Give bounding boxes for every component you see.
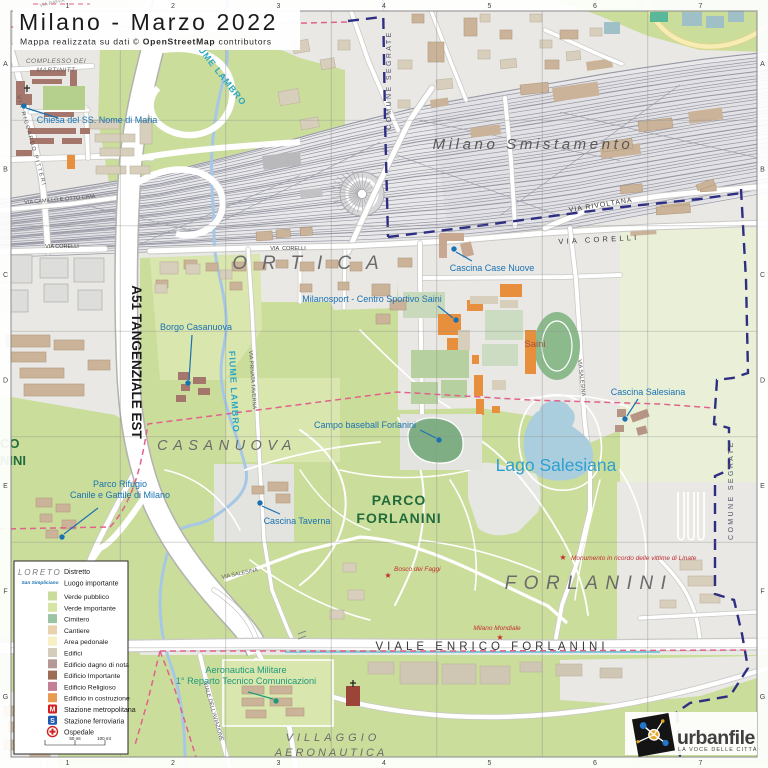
svg-text:Mappa realizzata su dati © Ope: Mappa realizzata su dati © OpenStreetMap…: [20, 37, 272, 47]
svg-text:M: M: [50, 707, 56, 714]
svg-text:Bosco dei Faggi: Bosco dei Faggi: [394, 566, 441, 573]
svg-text:Verde importante: Verde importante: [64, 605, 116, 612]
svg-text:FORLANINI: FORLANINI: [505, 573, 674, 594]
svg-text:Campo baseball Forlanini: Campo baseball Forlanini: [314, 420, 416, 430]
svg-text:E: E: [3, 483, 8, 490]
svg-text:VIALE ENRICO FORLANINI: VIALE ENRICO FORLANINI: [375, 641, 608, 653]
svg-text:Cimitero: Cimitero: [64, 617, 90, 624]
svg-text:ORTICA: ORTICA: [232, 253, 393, 274]
svg-text:urbanfile: urbanfile: [677, 727, 755, 749]
svg-text:5: 5: [488, 3, 492, 10]
svg-text:Milano Mondiale: Milano Mondiale: [473, 625, 521, 632]
svg-text:2: 2: [171, 760, 175, 767]
svg-text:G: G: [3, 694, 8, 701]
svg-text:★: ★: [496, 633, 503, 642]
svg-text:San Simpliciano: San Simpliciano: [21, 580, 58, 586]
svg-text:Cascina Taverna: Cascina Taverna: [264, 516, 331, 526]
svg-text:LA VOCE DELLE CITTÀ: LA VOCE DELLE CITTÀ: [678, 746, 758, 753]
svg-text:Stazione ferroviaria: Stazione ferroviaria: [64, 718, 124, 725]
svg-text:★: ★: [559, 553, 566, 562]
svg-text:4: 4: [382, 3, 386, 10]
svg-text:★: ★: [384, 571, 391, 580]
svg-text:C: C: [760, 272, 765, 279]
svg-text:Borgo Casanuova: Borgo Casanuova: [160, 322, 232, 332]
svg-text:Milano - Marzo 2022: Milano - Marzo 2022: [19, 9, 278, 35]
svg-text:A: A: [760, 61, 765, 68]
svg-text:50 mt: 50 mt: [69, 736, 81, 741]
svg-text:7: 7: [699, 3, 703, 10]
svg-text:Monumento in ricordo delle vit: Monumento in ricordo delle vittime di Li…: [571, 555, 697, 562]
svg-text:PARCO: PARCO: [372, 492, 427, 508]
svg-text:Parco Rifugio: Parco Rifugio: [93, 479, 147, 489]
svg-text:Saini: Saini: [524, 339, 545, 350]
svg-text:6: 6: [593, 3, 597, 10]
svg-text:CASANUOVA: CASANUOVA: [157, 438, 297, 454]
svg-text:VILLAGGIO: VILLAGGIO: [286, 732, 381, 744]
svg-text:Milanosport - Centro Sportivo: Milanosport - Centro Sportivo Saini: [302, 294, 442, 304]
svg-text:5: 5: [488, 760, 492, 767]
svg-text:F: F: [3, 589, 7, 596]
svg-text:COMUNE SEGRATE: COMUNE SEGRATE: [386, 30, 393, 130]
svg-text:B: B: [3, 167, 8, 174]
svg-text:D: D: [3, 378, 8, 385]
svg-text:COMUNE SEGRATE: COMUNE SEGRATE: [728, 440, 735, 540]
svg-text:D: D: [760, 378, 765, 385]
svg-text:Cascina Case Nuove: Cascina Case Nuove: [450, 263, 535, 273]
svg-text:Cascina Salesiana: Cascina Salesiana: [611, 387, 686, 397]
svg-text:Cantiere: Cantiere: [64, 628, 90, 635]
svg-text:A51 TANGENZIALE EST: A51 TANGENZIALE EST: [129, 285, 144, 439]
svg-text:1: 1: [66, 760, 70, 767]
svg-text:Edifici: Edifici: [64, 651, 83, 658]
svg-text:Distretto: Distretto: [64, 569, 90, 576]
svg-text:COMPLESSO DEI: COMPLESSO DEI: [26, 58, 86, 65]
svg-text:Luogo importante: Luogo importante: [64, 581, 119, 588]
svg-text:Chiesa del SS. Nome di Maria: Chiesa del SS. Nome di Maria: [37, 115, 158, 125]
svg-text:Aeronautica Militare: Aeronautica Militare: [205, 665, 286, 675]
svg-text:VIA CORELLI: VIA CORELLI: [45, 244, 79, 250]
svg-text:B: B: [760, 167, 765, 174]
svg-text:Edificio Importante: Edificio Importante: [64, 673, 121, 680]
svg-text:E: E: [760, 483, 765, 490]
svg-text:Edificio Religioso: Edificio Religioso: [64, 684, 116, 691]
svg-text:A: A: [3, 61, 8, 68]
svg-text:7: 7: [699, 760, 703, 767]
svg-text:Edificio in costruzione: Edificio in costruzione: [64, 696, 130, 703]
svg-text:3: 3: [277, 760, 281, 767]
svg-text:Canile e Gattile di Milano: Canile e Gattile di Milano: [70, 490, 170, 500]
svg-text:VIA CORELLI: VIA CORELLI: [270, 246, 306, 252]
svg-text:MARTINITT: MARTINITT: [36, 67, 76, 74]
svg-text:FORLANINI: FORLANINI: [356, 510, 441, 526]
svg-text:LORETO: LORETO: [18, 568, 62, 577]
svg-text:Milano Smistamento: Milano Smistamento: [433, 136, 634, 153]
svg-text:Lago Salesiana: Lago Salesiana: [496, 455, 617, 475]
svg-text:1° Reparto Tecnico Comunicazio: 1° Reparto Tecnico Comunicazioni: [176, 676, 316, 686]
svg-text:4: 4: [382, 760, 386, 767]
svg-text:C: C: [3, 272, 8, 279]
svg-text:G: G: [760, 694, 765, 701]
svg-text:F: F: [760, 589, 764, 596]
svg-text:6: 6: [593, 760, 597, 767]
svg-text:Stazione metropolitana: Stazione metropolitana: [64, 707, 136, 714]
svg-text:Edificio dagno di nota: Edificio dagno di nota: [64, 662, 129, 669]
svg-text:S: S: [50, 718, 55, 725]
svg-text:Verde pubblico: Verde pubblico: [64, 594, 109, 601]
svg-text:Area pedonale: Area pedonale: [64, 639, 108, 646]
svg-text:100 mt: 100 mt: [97, 736, 112, 741]
